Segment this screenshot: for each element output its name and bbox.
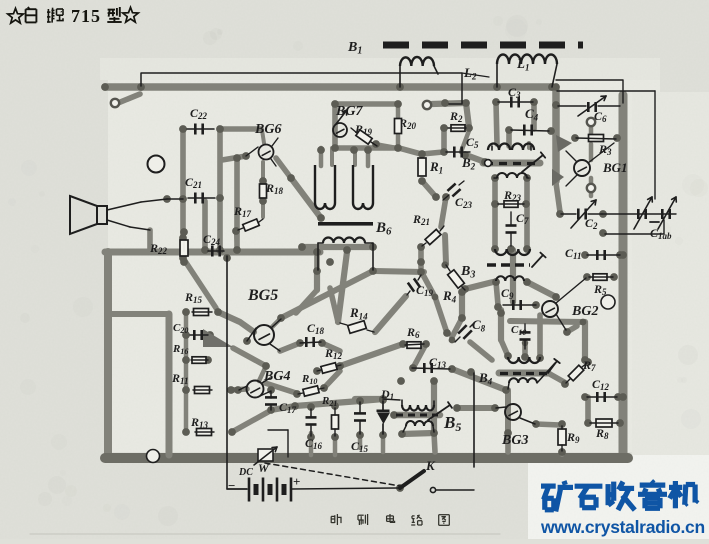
svg-text:BG3: BG3: [501, 433, 528, 448]
svg-text:DC: DC: [238, 467, 253, 478]
svg-text:www.crystalradio.cn: www.crystalradio.cn: [540, 517, 705, 537]
svg-text:BG5: BG5: [247, 287, 278, 304]
svg-text:−: −: [228, 478, 235, 493]
svg-text:715: 715: [71, 6, 101, 26]
svg-text:+: +: [293, 474, 300, 489]
svg-text:K: K: [425, 458, 436, 473]
svg-text:BG7: BG7: [335, 104, 363, 119]
svg-text:BG4: BG4: [263, 369, 290, 384]
svg-text:BG1: BG1: [602, 160, 628, 175]
svg-text:BG6: BG6: [254, 122, 281, 137]
svg-text:BG2: BG2: [571, 304, 598, 319]
